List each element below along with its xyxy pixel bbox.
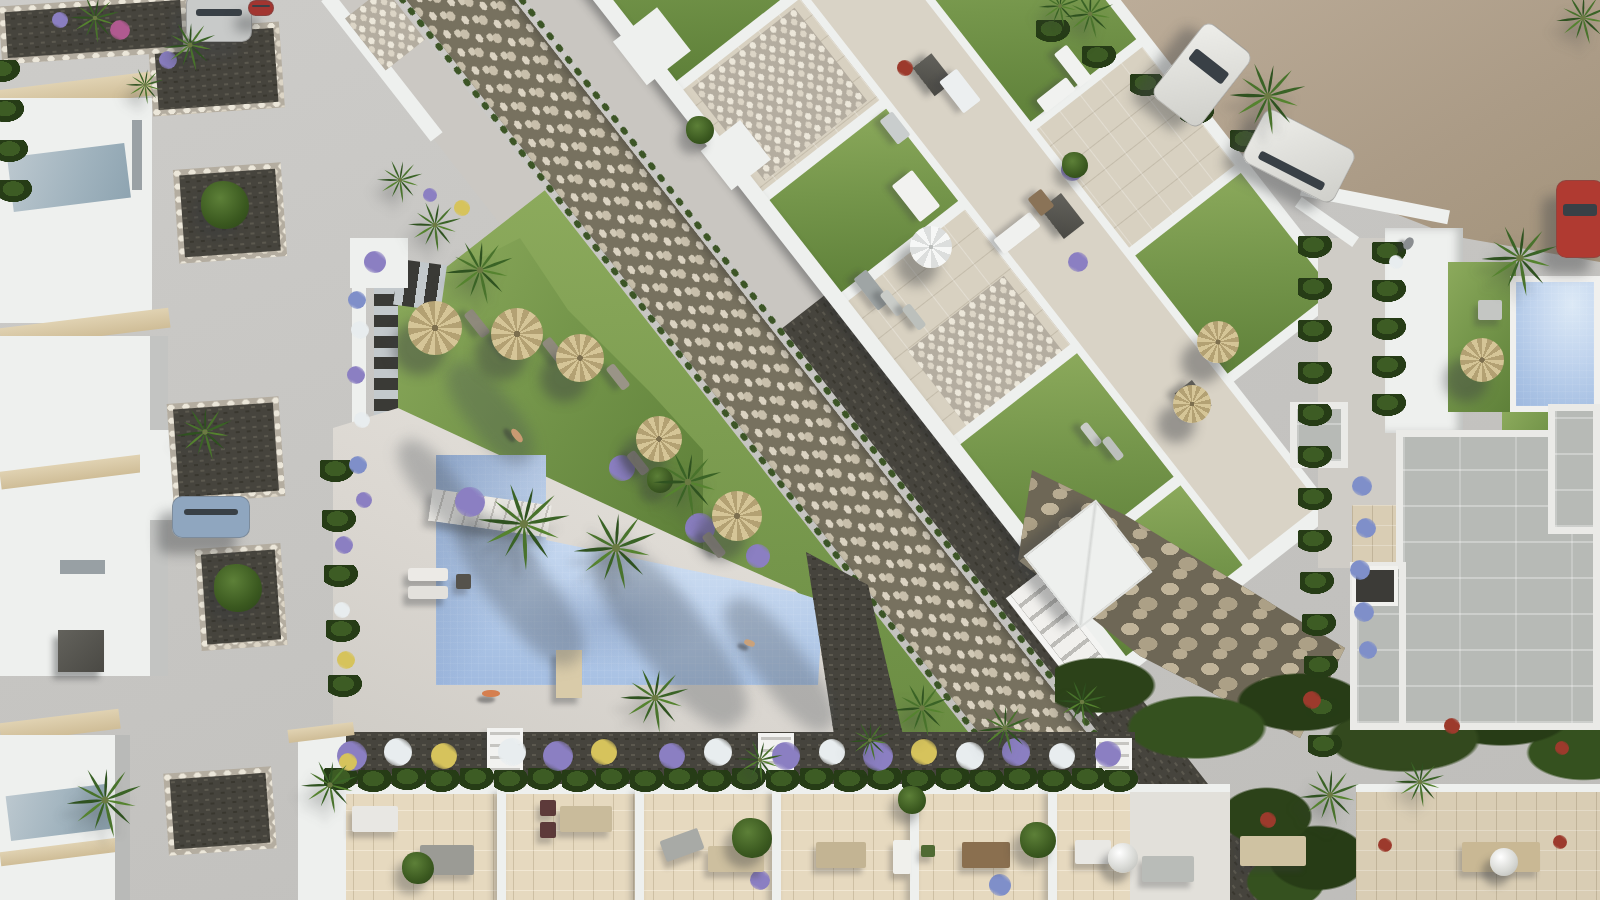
flower-cluster <box>384 738 412 766</box>
flower-cluster <box>1350 560 1370 580</box>
flower-cluster <box>498 738 526 766</box>
palm-tree <box>125 65 165 105</box>
flower-cluster <box>334 602 350 618</box>
flower-cluster <box>1303 691 1321 709</box>
palm-tree <box>300 755 360 815</box>
house2-window <box>60 560 105 574</box>
hedge-bush <box>426 770 460 792</box>
closed-parasol <box>1490 848 1518 876</box>
hedge-bush <box>0 140 28 162</box>
person <box>482 690 500 697</box>
hedge-bush <box>1298 236 1332 258</box>
hedge-bush <box>1302 614 1336 636</box>
patio-furniture <box>921 845 935 857</box>
palm-tree <box>1056 676 1108 728</box>
palm-fronds <box>300 755 360 815</box>
palm-fronds <box>619 662 691 734</box>
flower-cluster <box>1068 252 1088 272</box>
hedge-bush <box>1308 735 1342 757</box>
flower-cluster <box>989 874 1011 896</box>
flower-cluster <box>591 739 617 765</box>
hedge-bush <box>562 770 596 792</box>
hedge-bush <box>328 675 362 697</box>
hedge-bush <box>1104 770 1138 792</box>
flower-cluster <box>659 743 685 769</box>
flower-cluster <box>1260 812 1276 828</box>
palm-fronds <box>736 736 784 784</box>
bush-tree <box>214 564 262 612</box>
palm-fronds <box>376 156 424 204</box>
palm-fronds <box>1038 0 1082 28</box>
palm-tree <box>1228 56 1308 136</box>
palm-tree <box>736 736 784 784</box>
flower-cluster <box>364 251 386 273</box>
hedge-bush <box>322 510 356 532</box>
flower-cluster <box>1356 518 1376 538</box>
palm-tree <box>65 760 145 840</box>
patio-furniture <box>560 806 612 832</box>
terrace-br-1 <box>1130 790 1230 900</box>
palm-fronds <box>162 17 218 73</box>
vehicle-windshield <box>1188 48 1230 85</box>
flower-cluster <box>1359 641 1377 659</box>
flower-cluster <box>349 456 367 474</box>
hedge-bush <box>1004 768 1038 790</box>
terrace-divider-wall <box>635 788 644 900</box>
parked-car <box>1556 180 1600 258</box>
house2-ac-unit <box>58 630 104 672</box>
flower-cluster <box>897 60 913 76</box>
flower-cluster <box>704 738 732 766</box>
parked-car <box>172 496 250 538</box>
hedge-bush <box>326 620 360 642</box>
flower-cluster <box>347 366 365 384</box>
terrace-divider-wall <box>772 788 781 900</box>
palm-fronds <box>977 700 1033 756</box>
hedge-bush <box>494 770 528 792</box>
house1-window <box>132 120 142 190</box>
hedge-bush <box>1038 770 1072 792</box>
house2-roof <box>0 336 150 676</box>
palm-tree <box>1038 0 1082 28</box>
straw-parasol <box>408 301 462 355</box>
palm-fronds <box>848 718 892 762</box>
flower-cluster <box>1444 718 1460 734</box>
aerial-render-scene <box>0 0 1600 900</box>
straw-parasol <box>1173 385 1211 423</box>
palm-tree <box>162 17 218 73</box>
palm-fronds <box>1394 756 1446 808</box>
flower-cluster <box>356 492 372 508</box>
palm-tree <box>848 718 892 762</box>
hedge-bush <box>1300 572 1334 594</box>
flower-cluster <box>351 321 369 339</box>
terrace-divider-wall <box>497 788 506 900</box>
hedge-bush <box>834 770 868 792</box>
closed-parasol <box>1108 843 1138 873</box>
hedge-bush <box>630 770 664 792</box>
flower-cluster <box>1553 835 1567 849</box>
hedge-bush <box>1298 446 1332 468</box>
palm-fronds <box>1228 56 1308 136</box>
patio-furniture <box>1142 856 1194 882</box>
palm-tree <box>977 700 1033 756</box>
hedge-bush <box>596 768 630 790</box>
hedge-bush <box>0 100 24 122</box>
patio-furniture <box>1075 840 1111 864</box>
palm-tree <box>69 0 121 44</box>
sun-lounger <box>408 586 448 599</box>
flower-cluster <box>750 870 770 890</box>
hedge-bush <box>460 768 494 790</box>
hedge-bush <box>1298 278 1332 300</box>
hedge-bush <box>392 768 426 790</box>
palm-tree <box>652 446 724 518</box>
parked-car <box>248 0 274 16</box>
hedge-bush <box>1298 362 1332 384</box>
palm-tree <box>175 402 235 462</box>
gravel-bed <box>163 766 276 855</box>
hedge-bush <box>1298 320 1332 342</box>
straw-parasol <box>1197 321 1239 363</box>
hedge-bush <box>1372 356 1406 378</box>
terrace-br-1-wall <box>1130 784 1230 792</box>
hedge-bush <box>1372 318 1406 340</box>
palm-tree <box>572 504 660 592</box>
flower-cluster <box>819 739 845 765</box>
straw-parasol <box>556 334 604 382</box>
sun-lounger <box>408 568 448 581</box>
palm-fronds <box>444 234 516 306</box>
hedge-bush <box>1072 768 1106 790</box>
palm-tree <box>444 234 516 306</box>
palm-tree <box>1394 756 1446 808</box>
palm-tree <box>376 156 424 204</box>
patio-furniture <box>540 800 556 816</box>
palm-fronds <box>1480 218 1560 298</box>
flower-cluster <box>1095 741 1121 767</box>
hedge-bush <box>868 768 902 790</box>
palm-tree <box>892 678 952 738</box>
patio-furniture <box>540 822 556 838</box>
patio-furniture <box>816 842 866 868</box>
vehicle-windshield <box>184 509 239 515</box>
flower-cluster <box>746 544 770 568</box>
vehicle-windshield <box>252 5 269 7</box>
flower-cluster <box>543 741 573 771</box>
palm-fronds <box>892 678 952 738</box>
hedge-bush <box>0 60 20 82</box>
palm-tree <box>476 476 572 572</box>
hedge-bush <box>1298 404 1332 426</box>
palm-tree <box>1555 0 1600 46</box>
bush-tree <box>686 116 714 144</box>
palm-tree <box>1480 218 1560 298</box>
flower-cluster <box>431 743 457 769</box>
flower-cluster <box>335 536 353 554</box>
palm-fronds <box>125 65 165 105</box>
flower-cluster <box>911 739 937 765</box>
patio-furniture <box>962 842 1010 868</box>
palm-fronds <box>69 0 121 44</box>
vehicle-windshield <box>196 9 242 16</box>
patio-furniture <box>1478 300 1502 320</box>
flower-cluster <box>1352 476 1372 496</box>
hedge-bush <box>1082 46 1116 68</box>
gravel-bed-soil <box>170 773 271 850</box>
flower-cluster <box>354 412 370 428</box>
bush-tree <box>201 181 249 229</box>
palm-fronds <box>572 504 660 592</box>
flower-cluster <box>1378 838 1392 852</box>
hedge-bush <box>664 768 698 790</box>
hedge-bush <box>358 770 392 792</box>
flower-cluster <box>52 12 68 28</box>
hedge-bush <box>1372 394 1406 416</box>
palm-tree <box>1298 763 1362 827</box>
vehicle-windshield <box>1563 204 1596 216</box>
bush-tree <box>732 818 772 858</box>
hedge-bush <box>528 768 562 790</box>
hedge-bush <box>0 180 32 202</box>
palm-fronds <box>1056 676 1108 728</box>
roof-right-upper <box>1548 404 1600 534</box>
straw-parasol <box>491 308 543 360</box>
hedge-bush <box>970 770 1004 792</box>
flower-cluster <box>337 651 355 669</box>
bush-tree <box>898 786 926 814</box>
white-parasol <box>910 226 952 268</box>
flower-cluster <box>1354 602 1374 622</box>
palm-fronds <box>175 402 235 462</box>
palm-fronds <box>65 760 145 840</box>
hedge-bush <box>1298 530 1332 552</box>
flower-cluster <box>1389 255 1403 269</box>
patio-furniture <box>456 574 471 589</box>
flower-cluster <box>1049 743 1075 769</box>
hedge-bush <box>1304 656 1338 678</box>
hedge-bush <box>936 768 970 790</box>
hedge-bush <box>800 768 834 790</box>
bush-tree <box>1020 822 1056 858</box>
patio-furniture <box>1240 836 1306 866</box>
hedge-bush <box>1298 488 1332 510</box>
palm-fronds <box>1555 0 1600 46</box>
hedge-bush <box>1372 280 1406 302</box>
flower-cluster <box>348 291 366 309</box>
palm-fronds <box>1298 763 1362 827</box>
bush-tree <box>1062 152 1088 178</box>
hedge-bush <box>324 565 358 587</box>
straw-parasol <box>1460 338 1504 382</box>
palm-tree <box>619 662 691 734</box>
bush-tree <box>402 852 434 884</box>
palm-fronds <box>652 446 724 518</box>
flower-cluster <box>1555 741 1569 755</box>
palm-fronds <box>476 476 572 572</box>
hedge-bush <box>698 770 732 792</box>
patio-furniture <box>893 840 911 874</box>
terrace-br-2-wall <box>1356 784 1600 792</box>
